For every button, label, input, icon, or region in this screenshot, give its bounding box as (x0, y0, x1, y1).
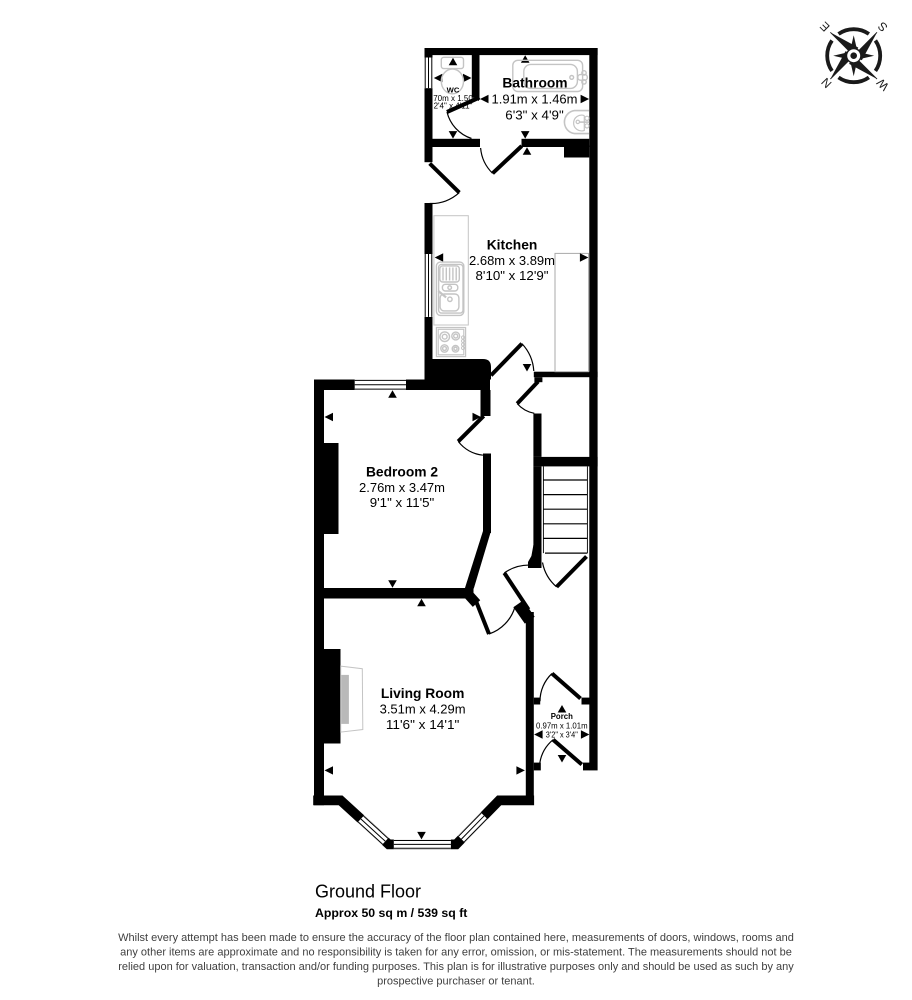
svg-text:1.91m x 1.46m: 1.91m x 1.46m (492, 92, 578, 107)
svg-text:3'2" x 3'4": 3'2" x 3'4" (546, 731, 578, 740)
svg-text:Bedroom 2: Bedroom 2 (366, 465, 438, 480)
svg-text:2.76m x 3.47m: 2.76m x 3.47m (359, 480, 445, 495)
svg-text:Approx 50 sq m / 539 sq ft: Approx 50 sq m / 539 sq ft (315, 906, 467, 920)
svg-text:prospective purchaser or tenan: prospective purchaser or tenant. (377, 976, 535, 988)
svg-text:6'3" x 4'9": 6'3" x 4'9" (505, 108, 564, 123)
svg-text:Living Room: Living Room (381, 686, 465, 701)
svg-text:9'1" x 11'5": 9'1" x 11'5" (370, 495, 435, 510)
svg-text:Ground Floor: Ground Floor (315, 882, 421, 902)
svg-text:2.68m x 3.89m: 2.68m x 3.89m (469, 253, 555, 268)
svg-text:relied upon for valuation, tra: relied upon for valuation, transaction a… (118, 961, 794, 973)
svg-text:3.51m x 4.29m: 3.51m x 4.29m (380, 702, 466, 717)
svg-text:8'10" x 12'9": 8'10" x 12'9" (476, 268, 549, 283)
svg-text:0.97m x 1.01m: 0.97m x 1.01m (536, 722, 588, 731)
svg-text:Bathroom: Bathroom (502, 76, 567, 91)
svg-text:any other items are approximat: any other items are approximate and no r… (120, 947, 792, 959)
svg-text:Kitchen: Kitchen (487, 238, 538, 253)
svg-text:11'6" x 14'1": 11'6" x 14'1" (386, 717, 460, 732)
svg-text:2'4" x 4'11": 2'4" x 4'11" (434, 102, 473, 111)
svg-text:WC: WC (447, 85, 460, 94)
svg-text:Whilst every attempt has been: Whilst every attempt has been made to en… (118, 932, 794, 944)
svg-text:Porch: Porch (551, 712, 573, 721)
